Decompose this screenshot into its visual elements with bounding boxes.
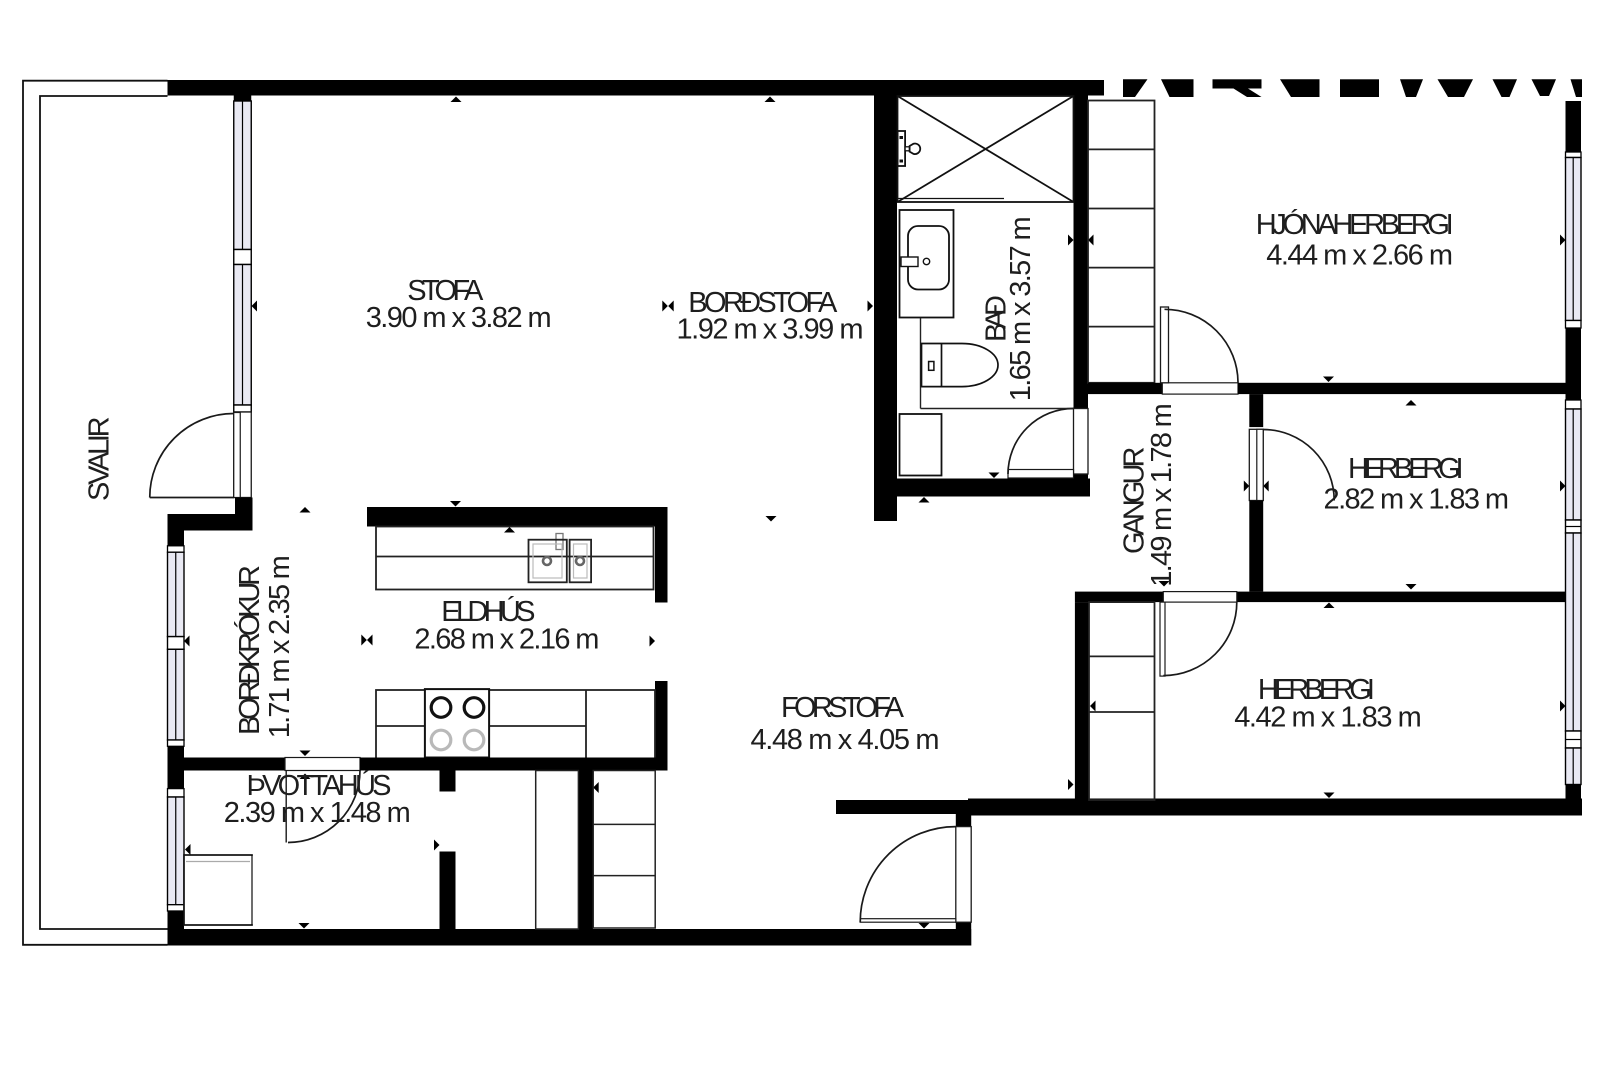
svg-text:1.49 m x 1.78 m: 1.49 m x 1.78 m [1146,403,1178,587]
svg-text:HJÓNAHERBERGI: HJÓNAHERBERGI [1256,208,1454,241]
svg-text:1.65 m x 3.57 m: 1.65 m x 3.57 m [1005,216,1037,401]
svg-text:BORÐKRÓKUR: BORÐKRÓKUR [233,565,266,735]
svg-text:FORSTOFA: FORSTOFA [781,692,905,724]
svg-text:2.82 m x 1.83 m: 2.82 m x 1.83 m [1324,484,1510,516]
svg-text:4.42 m x 1.83 m: 4.42 m x 1.83 m [1234,701,1422,733]
svg-text:2.39 m x 1.48 m: 2.39 m x 1.48 m [224,797,411,829]
svg-text:3.90 m x 3.82 m: 3.90 m x 3.82 m [366,302,552,334]
svg-text:1.71 m x 2.35 m: 1.71 m x 2.35 m [264,555,296,738]
svg-text:1.92 m x 3.99 m: 1.92 m x 3.99 m [677,314,864,346]
svg-text:SVALIR: SVALIR [84,416,116,501]
svg-text:HERBERGI: HERBERGI [1348,453,1464,485]
svg-text:4.44 m x 2.66 m: 4.44 m x 2.66 m [1266,239,1453,271]
svg-text:4.48 m x 4.05 m: 4.48 m x 4.05 m [751,724,940,756]
svg-text:2.68 m x 2.16 m: 2.68 m x 2.16 m [414,623,599,655]
